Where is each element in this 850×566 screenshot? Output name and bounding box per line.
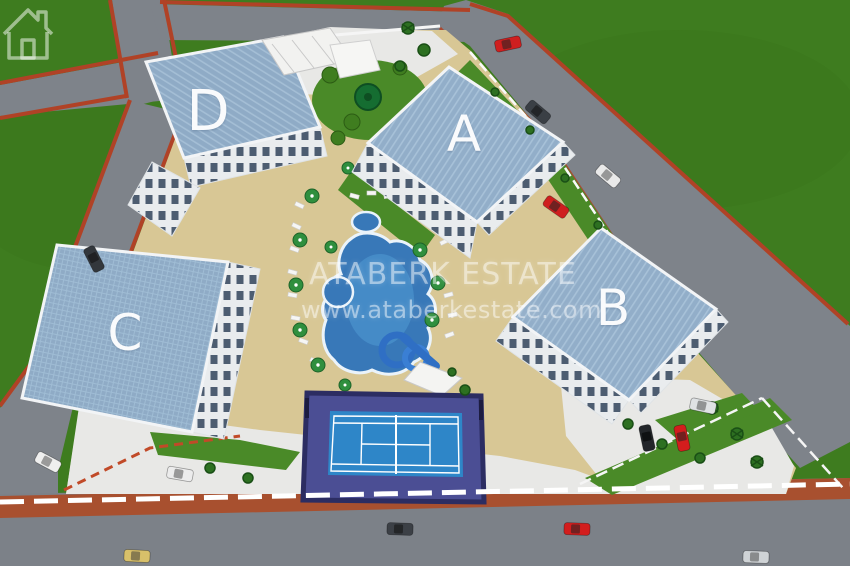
watermark-url: www.ataberkestate.com: [301, 296, 602, 324]
site-render: A B C D ATABERK ESTATE www.ataberkestate…: [0, 0, 850, 566]
watermark-brand: ATABERK ESTATE: [309, 257, 577, 292]
building-a-label: A: [447, 109, 481, 159]
building-d-label: D: [186, 84, 229, 140]
car-red: [564, 523, 590, 536]
car-dark-gray: [387, 523, 413, 536]
building-c-label: C: [108, 308, 143, 358]
tennis-court: [303, 393, 484, 502]
car-beige: [124, 549, 151, 562]
house-outline-icon: [0, 0, 56, 64]
kids-pool: [352, 212, 380, 232]
car-silver: [743, 551, 769, 564]
